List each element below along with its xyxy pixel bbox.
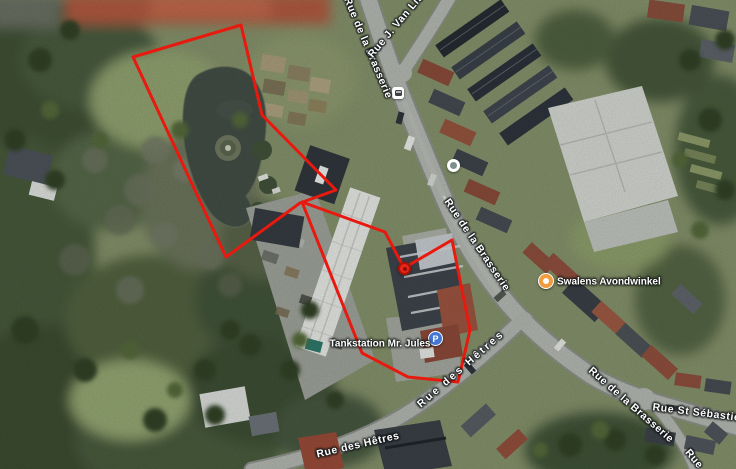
poi-marker-icon[interactable] [447,159,460,172]
bus-stop-icon[interactable] [392,87,404,99]
parcel-outline-factory [302,202,470,382]
parking-icon[interactable]: P [428,331,443,346]
parcel-outline-pond [133,25,336,257]
parcel-outline-overlay [0,0,736,469]
satellite-map-view[interactable]: P Rue de la Brasserie Rue J. Van Lish Ru… [0,0,736,469]
shop-poi-marker-icon[interactable] [538,273,554,289]
red-pin-icon[interactable] [398,262,411,275]
